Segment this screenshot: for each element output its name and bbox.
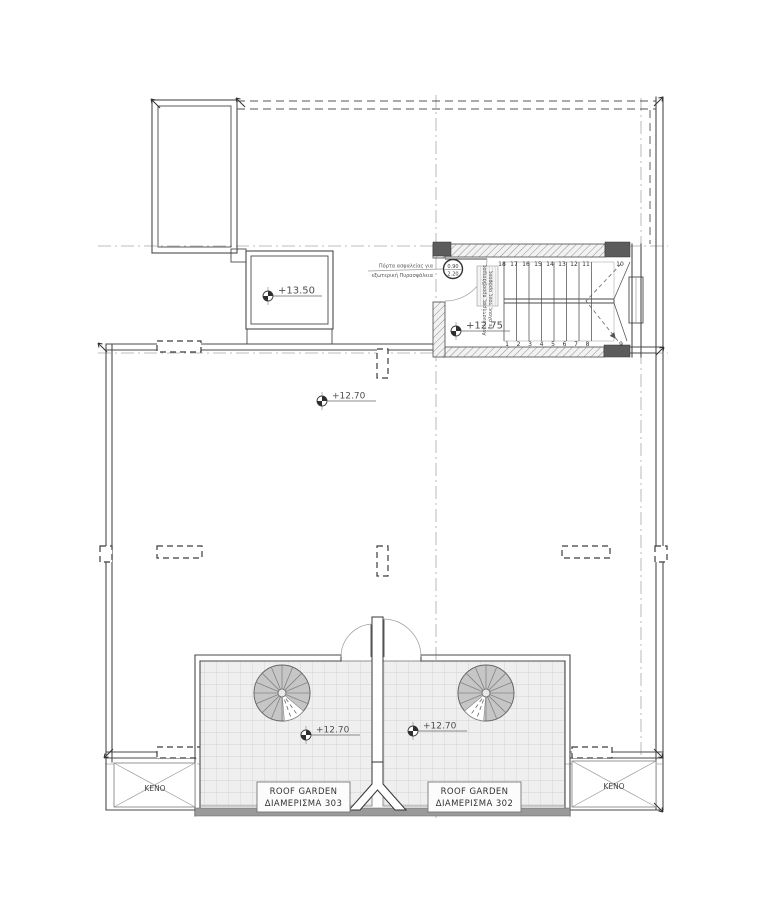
stair-bulkhead-roof: [246, 251, 333, 344]
stair-tread-number: 16: [522, 261, 530, 268]
door-tag-width: 0.90: [447, 264, 458, 270]
garden-left-title: ROOF GARDEN: [270, 787, 338, 797]
spiral-hub: [278, 689, 286, 697]
level-marker-stair-landing: +12.75: [451, 321, 510, 341]
stair-tread-number: 14: [546, 261, 554, 268]
stair-tread-number: 5: [551, 341, 555, 348]
stair-tread-number: 1: [505, 341, 509, 348]
winder-tread: [614, 303, 627, 341]
stair-wall-bottom: [443, 347, 604, 357]
spiral-stair-right: [458, 665, 514, 721]
stair-tread-number: 15: [534, 261, 542, 268]
door-tag-height: 2.20: [447, 272, 458, 278]
level-value: +13.50: [278, 286, 315, 297]
garden-right-title: ROOF GARDEN: [441, 787, 509, 797]
garden-left-subtitle: ΔΙΑΜΕΡΙΣΜΑ 303: [265, 799, 343, 809]
level-value: +12.70: [423, 722, 457, 732]
stair-tread-numbers: 181716151413121112345678109: [498, 261, 624, 348]
stair-tread-number: 11: [582, 261, 590, 268]
void-left-label: ΚΕΝΟ: [144, 784, 165, 793]
void-left: ΚΕΝΟ: [114, 763, 195, 807]
level-marker-main-roof: +12.70: [317, 392, 376, 411]
garden-door-left: [341, 624, 372, 657]
stair-tread-number: 13: [558, 261, 566, 268]
stair-tread-number: 10: [616, 261, 624, 268]
stair-tread-number: 7: [574, 341, 578, 348]
stair-tread-number: 18: [498, 261, 506, 268]
stair-tread-number: 3: [528, 341, 532, 348]
corner-arrows: [98, 97, 664, 812]
stair-tread-number: 4: [540, 341, 544, 348]
column: [433, 242, 451, 256]
garden-door-right: [383, 619, 421, 657]
roof-edge-dashed: [237, 101, 656, 244]
level-value: +12.75: [466, 321, 503, 332]
spiral-hub: [482, 689, 490, 697]
level-value: +12.70: [332, 392, 366, 402]
stair-handrail: [504, 299, 614, 303]
stair-treads: [504, 262, 592, 341]
door-swing-arc: [341, 624, 372, 657]
room-label-garden-left: ROOF GARDEN ΔΙΑΜΕΡΙΣΜΑ 303: [257, 782, 350, 812]
fire-exit-note: Πόρτα ασφαλείας για εξωτερική Πυρασφάλει…: [368, 263, 443, 280]
level-marker-stair-roof: +13.50: [263, 286, 322, 306]
stair-tread-number: 8: [586, 341, 590, 348]
level-value: +12.70: [316, 726, 350, 736]
stair-tread-number: 17: [510, 261, 518, 268]
column: [605, 242, 630, 257]
direction-arrowhead: [610, 332, 616, 339]
door-note-line2: εξωτερική Πυρασφάλεια: [372, 272, 434, 279]
stair-tread-number: 12: [570, 261, 578, 268]
spiral-stair-left: [254, 665, 310, 721]
column: [604, 345, 630, 357]
garden-right-subtitle: ΔΙΑΜΕΡΙΣΜΑ 302: [436, 799, 514, 809]
stair-tread-number: 6: [563, 341, 567, 348]
floor-plan-canvas: 0.90 2.20 Ανελκυστήρας προσβάσιμος σε όλ…: [0, 0, 768, 897]
stair-wall-left-lower: [433, 302, 445, 357]
stair-tread-number: 2: [517, 341, 521, 348]
stair-inner-outline: [504, 262, 614, 341]
upper-parapet-wall: [152, 100, 246, 262]
door-note-line1: Πόρτα ασφαλείας για: [379, 263, 434, 270]
stairwell: 0.90 2.20 Ανελκυστήρας προσβάσιμος σε όλ…: [368, 242, 643, 357]
stair-wall-top: [445, 244, 605, 257]
door-swing-arc: [383, 619, 421, 657]
stair-tread-number: 9: [619, 341, 623, 348]
void-right-label: ΚΕΝΟ: [603, 782, 624, 791]
void-right: ΚΕΝΟ: [572, 761, 656, 807]
room-label-garden-right: ROOF GARDEN ΔΙΑΜΕΡΙΣΜΑ 302: [428, 782, 521, 812]
